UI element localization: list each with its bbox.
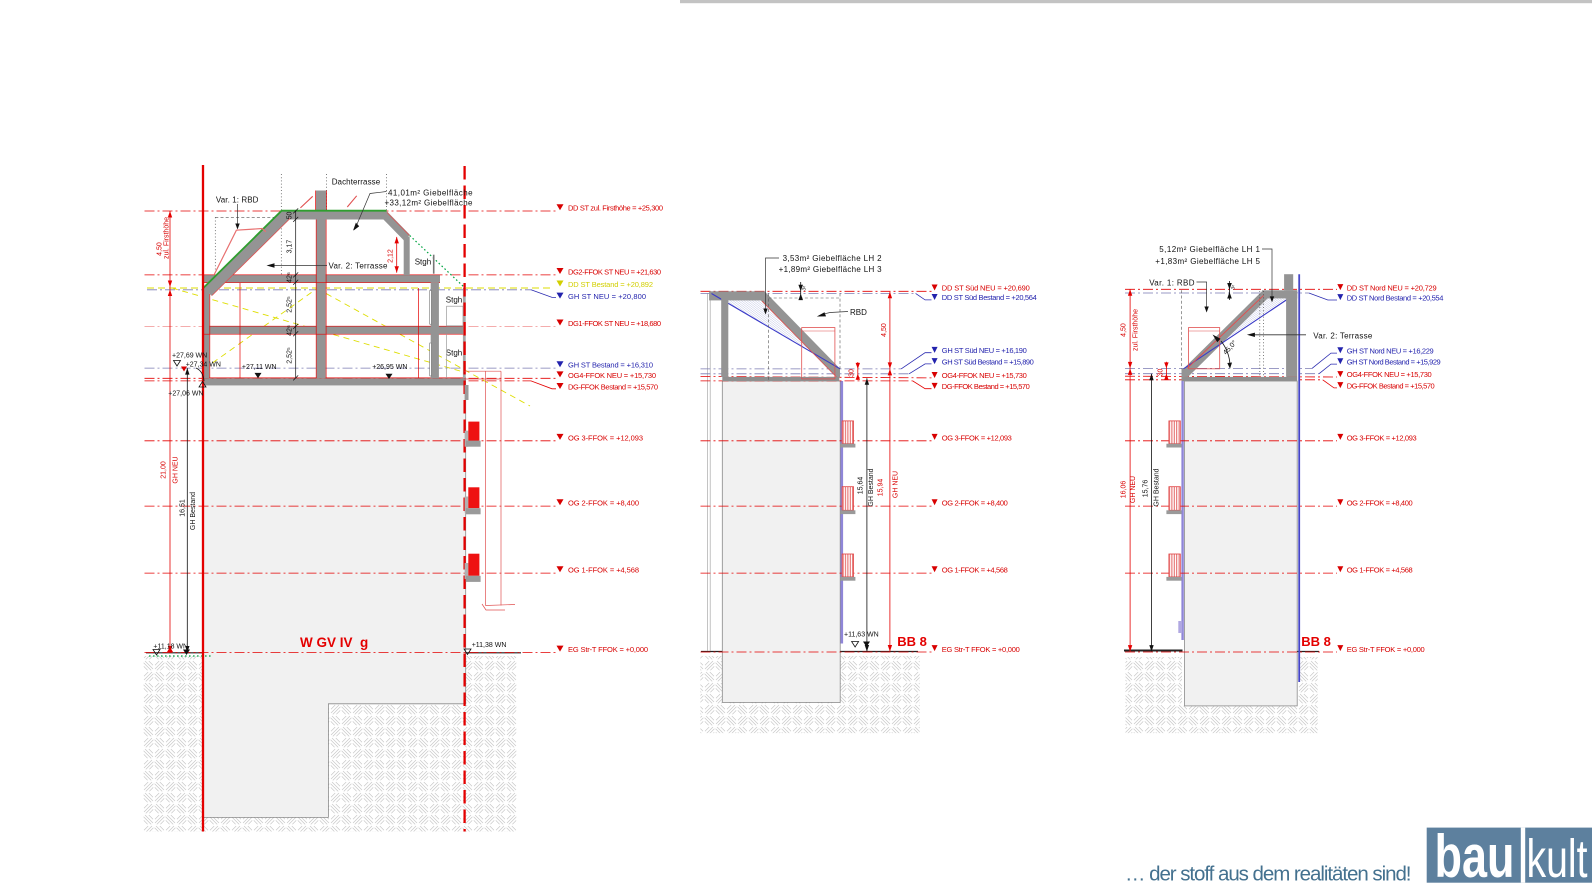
svg-text:OG 2-FFOK = +8,400: OG 2-FFOK = +8,400 — [568, 499, 639, 508]
svg-text:Var. 2: Terrasse: Var. 2: Terrasse — [329, 262, 389, 271]
svg-text:DG-FFOK Bestand = +15,570: DG-FFOK Bestand = +15,570 — [568, 382, 658, 391]
svg-text:GH ST Nord NEU = +16,229: GH ST Nord NEU = +16,229 — [1347, 346, 1434, 355]
svg-text:OG 1-FFOK = +4,568: OG 1-FFOK = +4,568 — [568, 566, 639, 575]
svg-text:GH ST Bestand = +16,310: GH ST Bestand = +16,310 — [568, 361, 653, 370]
svg-text:41,01m² Giebelfläche: 41,01m² Giebelfläche — [388, 189, 473, 198]
svg-text:Var. 1: RBD: Var. 1: RBD — [216, 195, 259, 204]
svg-text:DD ST zul. Firsthöhe = +25,3: DD ST zul. Firsthöhe = +25,300 — [568, 203, 663, 212]
svg-text:OG 3-FFOK = +12,093: OG 3-FFOK = +12,093 — [568, 433, 643, 442]
svg-text:OG 3-FFOK = +12,093: OG 3-FFOK = +12,093 — [1347, 433, 1417, 442]
svg-text:zul. Firsthöhe: zul. Firsthöhe — [1133, 309, 1140, 351]
svg-text:OG4-FFOK NEU = +15,730: OG4-FFOK NEU = +15,730 — [1347, 370, 1432, 379]
svg-text:+27,34 WN: +27,34 WN — [186, 362, 221, 369]
svg-text:+27,69 WN: +27,69 WN — [172, 353, 207, 360]
svg-text:GH NEU: GH NEU — [893, 471, 900, 498]
svg-text:3,53m² Giebelfläche LH 2: 3,53m² Giebelfläche LH 2 — [783, 254, 883, 263]
svg-text:GH NEU: GH NEU — [173, 456, 180, 483]
svg-text:+1,83m² Giebelfläche LH 5: +1,83m² Giebelfläche LH 5 — [1155, 257, 1260, 266]
svg-text:GH NEU: GH NEU — [1130, 476, 1137, 503]
svg-text:DG2-FFOK ST NEU = +21,630: DG2-FFOK ST NEU = +21,630 — [568, 267, 661, 276]
svg-text:… der stoff aus dem realitäten: … der stoff aus dem realitäten sind! — [1125, 863, 1412, 886]
svg-text:DD ST Bestand = +20,892: DD ST Bestand = +20,892 — [568, 280, 653, 289]
svg-text:4,50: 4,50 — [1121, 323, 1128, 337]
svg-text:Stgh: Stgh — [446, 349, 462, 358]
svg-text:OG4-FFOK NEU = +15,730: OG4-FFOK NEU = +15,730 — [942, 371, 1027, 380]
svg-text:OG 3-FFOK = +12,093: OG 3-FFOK = +12,093 — [942, 433, 1012, 442]
svg-text:+26,95 WN: +26,95 WN — [372, 364, 407, 371]
svg-text:3,17: 3,17 — [287, 240, 294, 254]
svg-text:GH ST Süd NEU = +16,190: GH ST Süd NEU = +16,190 — [942, 346, 1027, 355]
svg-text:OG4-FFOK NEU = +15,730: OG4-FFOK NEU = +15,730 — [568, 371, 656, 380]
svg-text:16,51: 16,51 — [180, 499, 187, 517]
svg-text:GH ST NEU = +20,800: GH ST NEU = +20,800 — [568, 292, 646, 301]
svg-text:DD ST Nord NEU = +20,729: DD ST Nord NEU = +20,729 — [1347, 283, 1437, 292]
svg-text:2,12: 2,12 — [388, 249, 395, 263]
svg-text:Var. 1: RBD: Var. 1: RBD — [1149, 278, 1195, 287]
svg-text:+1,89m² Giebelfläche LH 3: +1,89m² Giebelfläche LH 3 — [779, 265, 883, 274]
svg-text:EG Str-T FFOK = +0,000: EG Str-T FFOK = +0,000 — [568, 645, 648, 654]
svg-text:DD ST Süd Bestand = +20,564: DD ST Süd Bestand = +20,564 — [942, 293, 1037, 302]
svg-text:W GV IV: W GV IV — [300, 635, 353, 650]
svg-text:zul. Firsthöhe: zul. Firsthöhe — [164, 217, 171, 259]
svg-text:+27,06 WN: +27,06 WN — [168, 390, 203, 397]
svg-text:30: 30 — [849, 369, 856, 377]
svg-text:DD ST Nord Bestand = +20,554: DD ST Nord Bestand = +20,554 — [1347, 293, 1444, 302]
svg-text:GH ST Nord Bestand = +15,929: GH ST Nord Bestand = +15,929 — [1347, 357, 1441, 366]
svg-text:DG1-FFOK ST NEU = +18,680: DG1-FFOK ST NEU = +18,680 — [568, 319, 661, 328]
svg-text:EG Str-T FFOK = +0,000: EG Str-T FFOK = +0,000 — [1347, 645, 1425, 654]
svg-text:DG-FFOK Bestand = +15,570: DG-FFOK Bestand = +15,570 — [942, 382, 1030, 391]
svg-text:5,12m² Giebelfläche LH 1: 5,12m² Giebelfläche LH 1 — [1159, 245, 1260, 254]
svg-text:RBD: RBD — [850, 308, 867, 317]
svg-text:42⁶: 42⁶ — [287, 272, 294, 283]
svg-text:50: 50 — [287, 212, 294, 220]
svg-text:16,06: 16,06 — [1121, 481, 1128, 499]
svg-text:BB 8: BB 8 — [1301, 634, 1331, 649]
svg-text:GH Bestand: GH Bestand — [1153, 468, 1160, 506]
svg-text:21,00: 21,00 — [161, 461, 168, 479]
svg-text:OG 2-FFOK = +8,400: OG 2-FFOK = +8,400 — [1347, 499, 1413, 508]
svg-text:15,76: 15,76 — [1142, 480, 1149, 498]
svg-text:4,50: 4,50 — [157, 242, 164, 256]
svg-text:bau: bau — [1435, 823, 1515, 890]
svg-text:15,64: 15,64 — [857, 477, 864, 495]
svg-text:Var. 2: Terrasse: Var. 2: Terrasse — [1313, 332, 1373, 341]
svg-text:OG 1-FFOK = +4,568: OG 1-FFOK = +4,568 — [942, 566, 1008, 575]
svg-text:BB 8: BB 8 — [897, 634, 927, 649]
svg-text:4,50: 4,50 — [881, 323, 888, 337]
svg-text:OG 1-FFOK = +4,568: OG 1-FFOK = +4,568 — [1347, 566, 1413, 575]
svg-text:15,94: 15,94 — [877, 479, 884, 497]
svg-text:g: g — [360, 635, 368, 650]
svg-text:+11,38 WN: +11,38 WN — [472, 642, 507, 649]
svg-text:Stgh: Stgh — [446, 295, 462, 304]
svg-text:2,52⁵: 2,52⁵ — [287, 347, 294, 364]
svg-text:GH ST Süd Bestand = +15,890: GH ST Süd Bestand = +15,890 — [942, 357, 1034, 366]
svg-text:OG 2-FFOK = +8,400: OG 2-FFOK = +8,400 — [942, 499, 1008, 508]
svg-text:+33,12m² Giebelfläche: +33,12m² Giebelfläche — [385, 198, 474, 207]
svg-text:GH Bestand: GH Bestand — [868, 468, 875, 506]
svg-text:Stgh: Stgh — [415, 257, 431, 266]
svg-text:GH Bestand: GH Bestand — [190, 492, 197, 530]
svg-text:EG Str-T FFOK = +0,000: EG Str-T FFOK = +0,000 — [942, 645, 1020, 654]
svg-text:+11,63 WN: +11,63 WN — [844, 632, 879, 639]
svg-text:DG-FFOK Bestand = +15,570: DG-FFOK Bestand = +15,570 — [1347, 381, 1435, 390]
svg-text:42⁶: 42⁶ — [287, 325, 294, 336]
svg-text:2,52⁵: 2,52⁵ — [287, 296, 294, 313]
svg-text:kult: kult — [1527, 829, 1588, 889]
svg-text:30: 30 — [1157, 369, 1164, 377]
svg-text:+27,11 WN: +27,11 WN — [242, 364, 277, 371]
svg-text:DD ST Süd NEU = +20,690: DD ST Süd NEU = +20,690 — [942, 284, 1030, 293]
svg-text:Dachterrasse: Dachterrasse — [332, 177, 381, 186]
